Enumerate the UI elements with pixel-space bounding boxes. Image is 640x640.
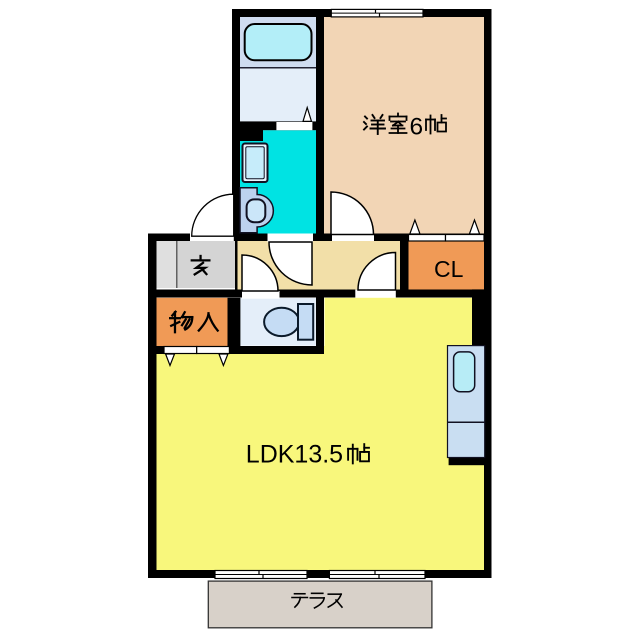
svg-text:CL: CL [434, 256, 464, 282]
svg-text:LDK13.5: LDK13.5 [246, 441, 343, 469]
svg-text:6: 6 [410, 114, 424, 141]
